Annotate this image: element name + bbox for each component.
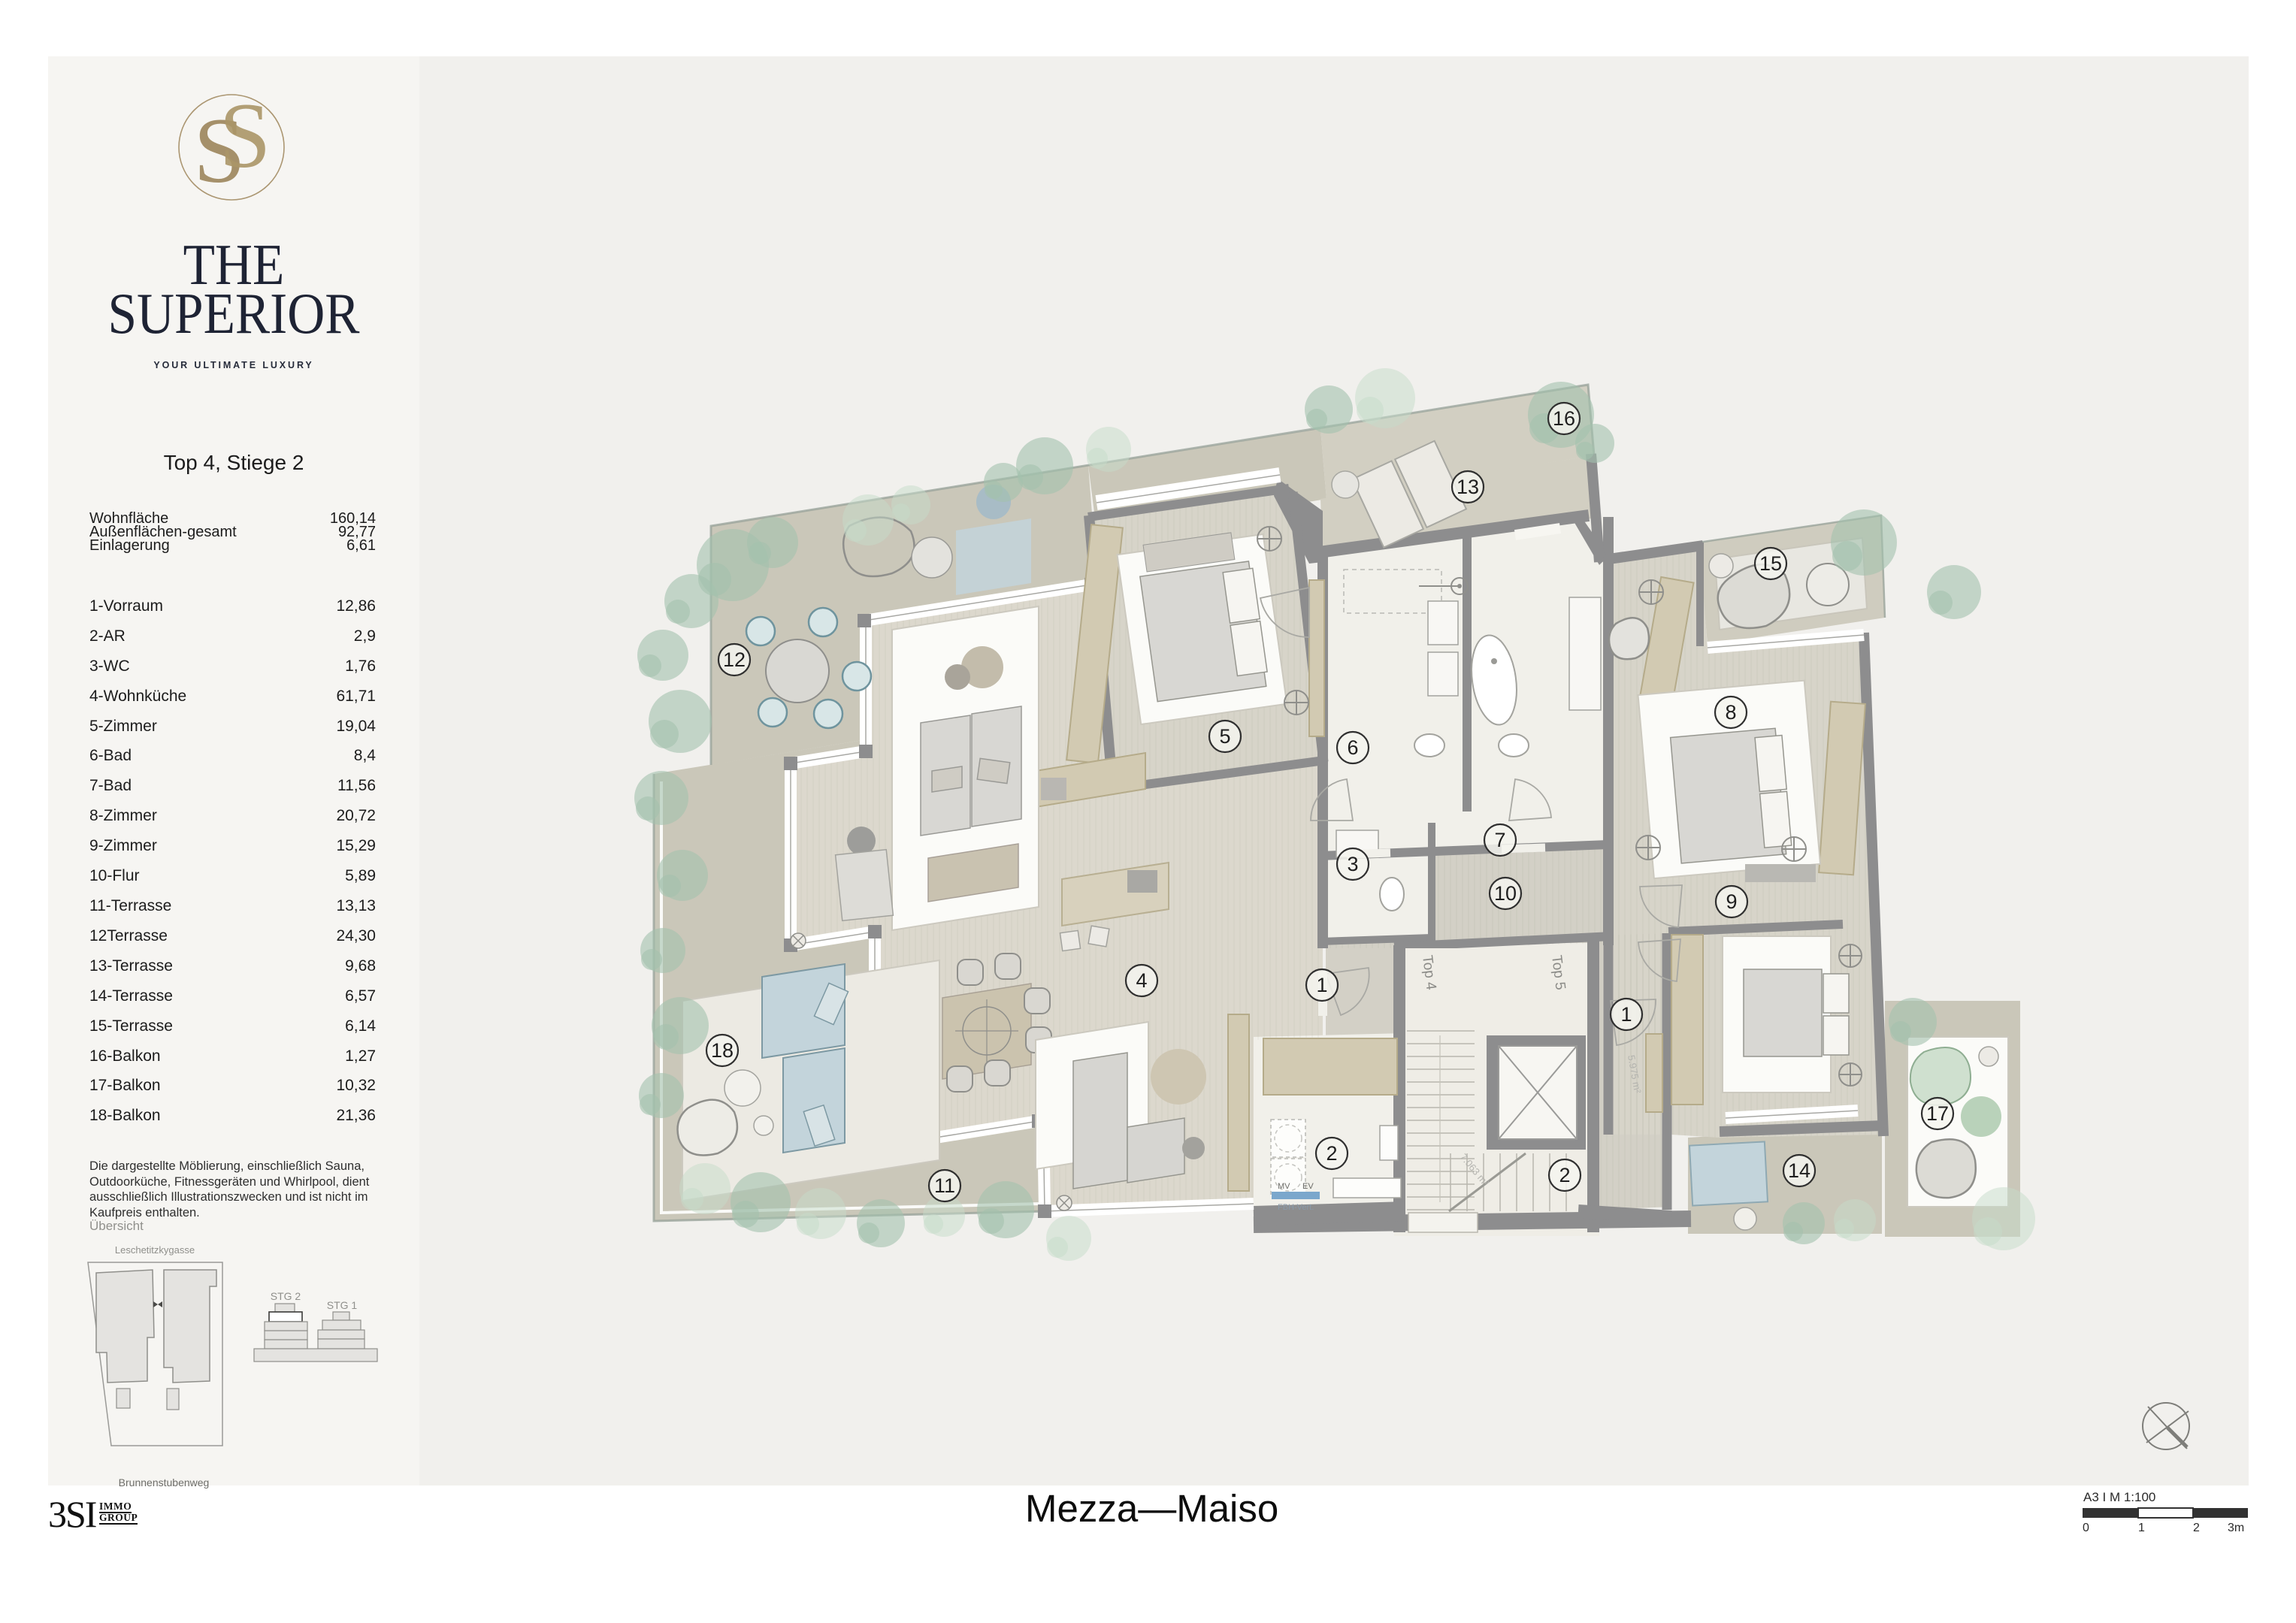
svg-text:Leschetitzkygasse: Leschetitzkygasse (115, 1244, 195, 1256)
svg-text:STG 1: STG 1 (327, 1299, 358, 1311)
svg-text:Brunnenstubenweg: Brunnenstubenweg (119, 1476, 210, 1489)
svg-text:STG 2: STG 2 (271, 1290, 301, 1302)
